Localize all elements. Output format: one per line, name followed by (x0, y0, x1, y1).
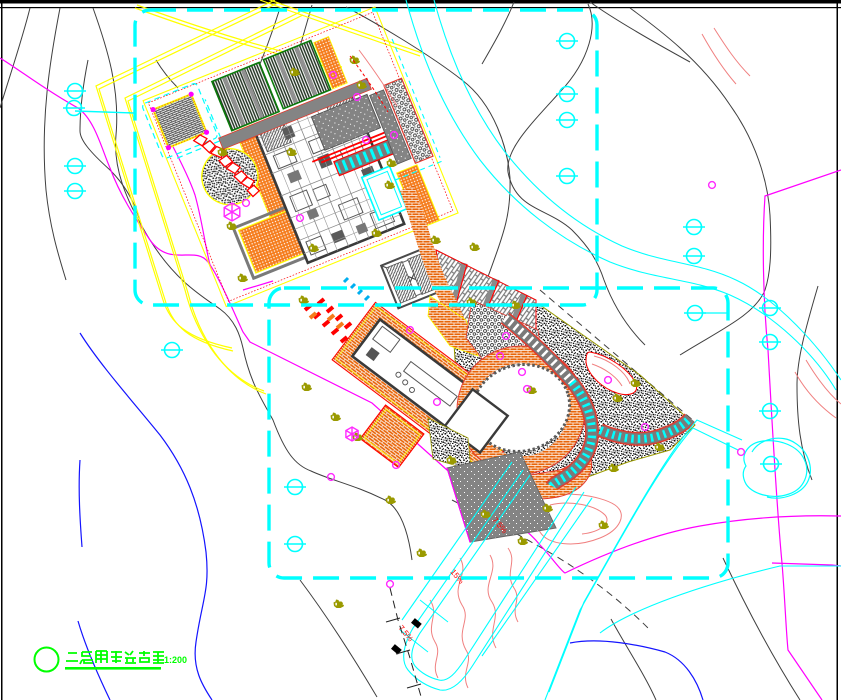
svg-text:1:200: 1:200 (164, 655, 187, 665)
